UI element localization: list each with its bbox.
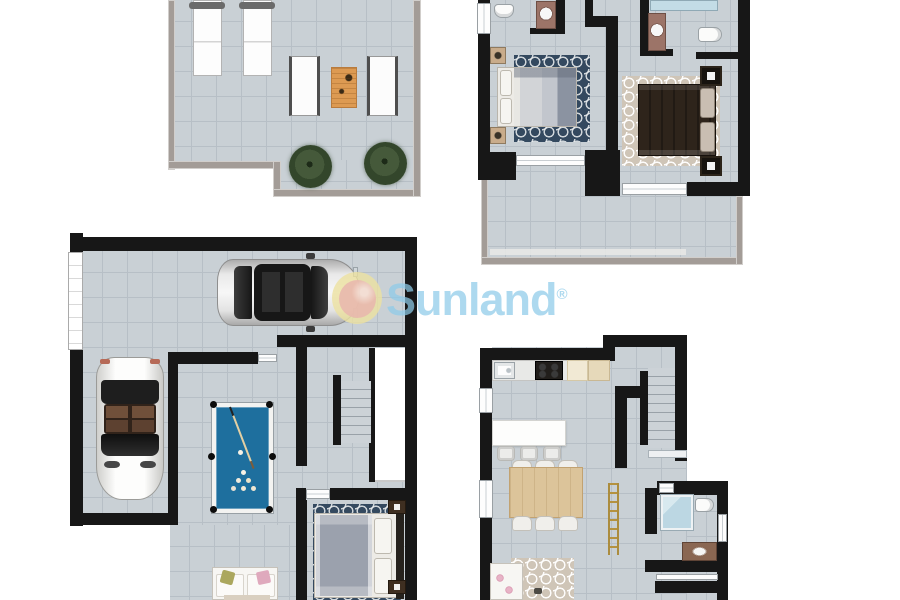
bar-stool-3 xyxy=(543,446,561,461)
dining-table xyxy=(509,467,583,518)
living-sofa xyxy=(490,563,523,600)
kitchen-wall-top xyxy=(486,348,610,360)
dining-chair-bottom-1 xyxy=(512,516,532,531)
bar-stool-2 xyxy=(520,446,538,461)
kitchen-sink-icon xyxy=(494,362,515,379)
decor-item xyxy=(534,588,542,594)
pink-flower-icon-2 xyxy=(505,586,513,594)
pink-flower-icon xyxy=(496,574,504,582)
stairwell-wall-stub xyxy=(603,335,615,361)
staircase-steps-ground xyxy=(648,368,675,448)
stairwell-wall-right xyxy=(675,335,687,461)
kitchen-cabinet-2 xyxy=(588,360,610,381)
stair-divider-wall xyxy=(640,371,648,445)
bathroom-wall-left xyxy=(645,488,657,534)
stair-landing-sill xyxy=(648,450,687,458)
bottom-window-band xyxy=(656,574,718,580)
bar-stool-1 xyxy=(497,446,515,461)
toilet-icon-ground xyxy=(695,498,714,512)
washbasin-icon-ground xyxy=(682,542,717,561)
kitchen-island xyxy=(492,420,566,446)
living-window-1 xyxy=(479,388,493,413)
decorative-ladder-icon xyxy=(608,483,619,555)
cooktop-icon xyxy=(535,361,563,380)
stair-wall-h xyxy=(615,386,648,398)
plan-ground-floor xyxy=(0,0,900,600)
bathroom-door xyxy=(659,483,674,493)
dining-chair-bottom-3 xyxy=(558,516,578,531)
bottom-outer-wall xyxy=(655,581,720,593)
kitchen-cabinet-1 xyxy=(567,360,588,381)
stair-wall-v xyxy=(615,398,627,468)
bathroom-wall-bottom xyxy=(645,560,722,572)
shower-icon xyxy=(661,495,693,530)
bathroom-window xyxy=(718,514,727,542)
dining-chair-bottom-2 xyxy=(535,516,555,531)
living-window-2 xyxy=(479,480,493,518)
floorplan-sheet: Sunland® xyxy=(0,0,900,600)
